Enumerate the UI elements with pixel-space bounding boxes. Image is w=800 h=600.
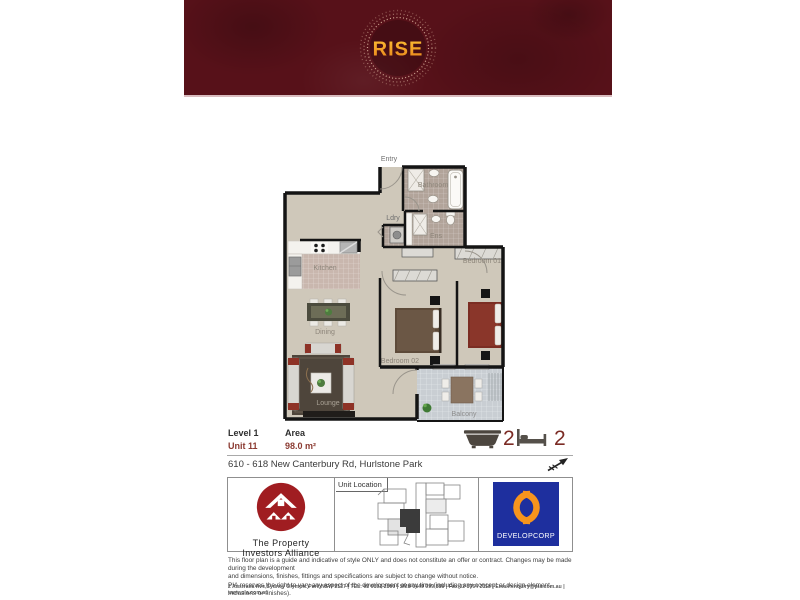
bedroom2-wardrobe (393, 270, 437, 281)
laundry-label: Ldry (386, 215, 400, 222)
disclaimer-line1: This floor plan is a guide and indicativ… (228, 557, 574, 573)
fridge-icon (289, 257, 301, 276)
unit-location-panel: Unit Location (334, 478, 478, 551)
lounge-label: Lounge (316, 400, 339, 407)
bathroom-label: Bathroom (418, 182, 449, 189)
developcorp-text: DEVELOPCORP (497, 531, 555, 540)
bedroom-count: 2 (554, 427, 566, 451)
level-unit-block: Level 1 Unit 11 (228, 427, 259, 453)
toilet-icon (447, 215, 455, 225)
unit-location-diagram (364, 481, 476, 549)
ensuite-label: Ens (430, 233, 443, 240)
pia-panel: The Property Investors Alliance (228, 478, 334, 551)
unit-label: Unit 11 (228, 440, 259, 453)
area-block: Area 98.0 m² (285, 427, 316, 453)
bed-icon (517, 429, 547, 446)
north-arrow-icon (546, 457, 570, 473)
developer-panel: DEVELOPCORP (478, 478, 574, 551)
floor-plan: Entry Bathroom Ldry Ens Kitchen Bedroom … (283, 153, 507, 429)
bedroom1-label: Bedroom 01 (463, 258, 501, 265)
entry-label: Entry (381, 156, 398, 163)
rise-banner: RISE (184, 0, 612, 97)
cooktop-icon (311, 242, 328, 253)
balcony-label: Balcony (452, 411, 477, 418)
area-value: 98.0 m² (285, 440, 316, 453)
rise-logo-text: RISE (373, 38, 424, 60)
pia-logo-icon (255, 481, 307, 533)
dining-label: Dining (315, 329, 335, 336)
hall-cupboard (402, 248, 433, 257)
brochure-page: RISE (0, 0, 800, 600)
disclaimer-line2: and dimensions, finishes, fittings and s… (228, 573, 574, 581)
bathroom-count: 2 (503, 427, 515, 451)
bathtub-icon (463, 429, 502, 449)
contact-line: 2 Australia Ave,Sydney Olympic Park,NSW … (228, 584, 574, 596)
area-label: Area (285, 427, 316, 440)
rise-logo: RISE (350, 0, 446, 96)
kitchen-label: Kitchen (313, 265, 336, 272)
dining-furniture (307, 299, 350, 326)
developcorp-logo: DEVELOPCORP (493, 482, 559, 546)
balcony-table (451, 377, 473, 403)
sofa-left (288, 358, 299, 410)
sofa-right (343, 358, 354, 410)
footer-logos-box: The Property Investors Alliance Unit Loc… (227, 477, 573, 552)
divider-top (227, 455, 573, 456)
level-label: Level 1 (228, 427, 259, 440)
bedroom2-label: Bedroom 02 (381, 358, 419, 365)
tv-unit (303, 411, 355, 417)
address-line: 610 - 618 New Canterbury Rd, Hurlstone P… (228, 459, 422, 470)
